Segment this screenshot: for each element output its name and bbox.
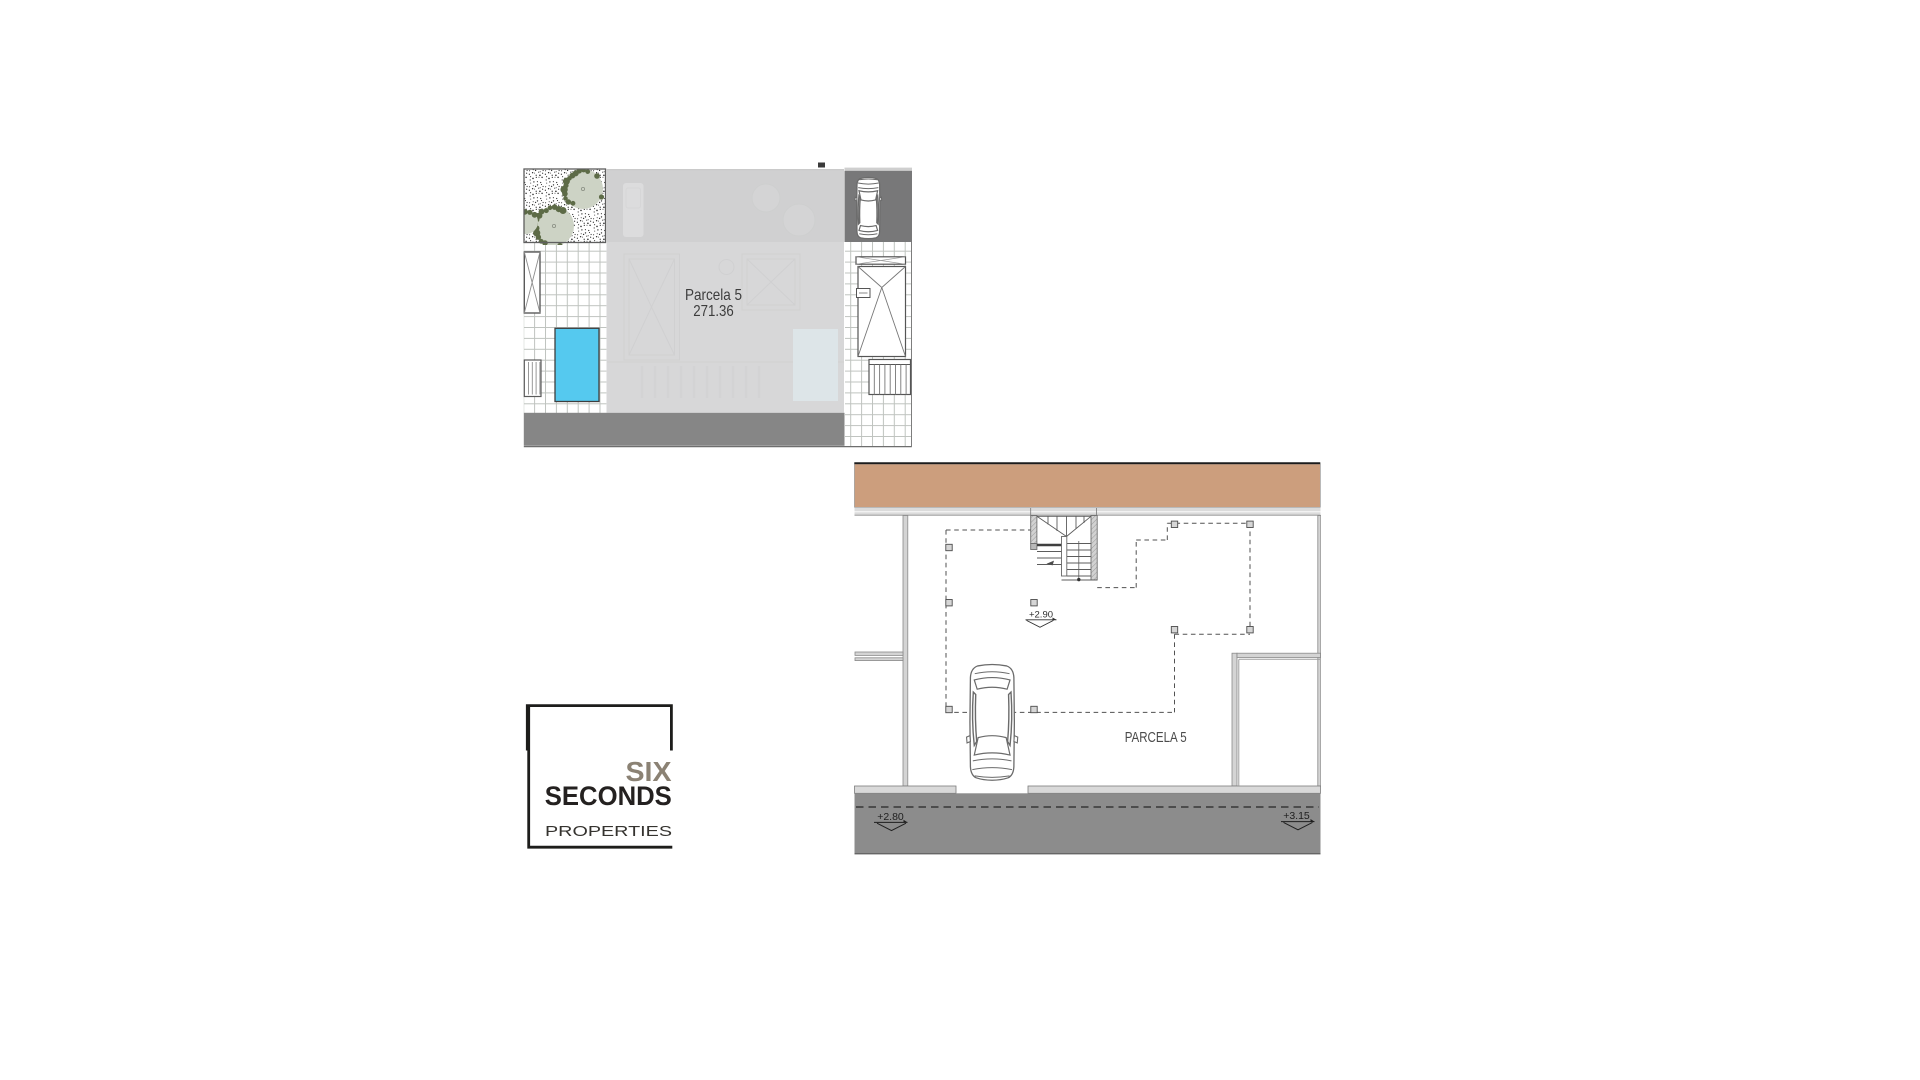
svg-text:271.36: 271.36	[693, 303, 734, 320]
svg-text:PROPERTIES: PROPERTIES	[545, 823, 672, 840]
svg-text:+3.15: +3.15	[1283, 810, 1310, 822]
svg-text:PARCELA 5: PARCELA 5	[1125, 730, 1187, 746]
svg-text:SECONDS: SECONDS	[545, 781, 672, 811]
svg-text:Parcela 5: Parcela 5	[685, 287, 742, 304]
svg-text:+2.90: +2.90	[1029, 610, 1053, 621]
svg-text:+2.80: +2.80	[877, 811, 904, 823]
